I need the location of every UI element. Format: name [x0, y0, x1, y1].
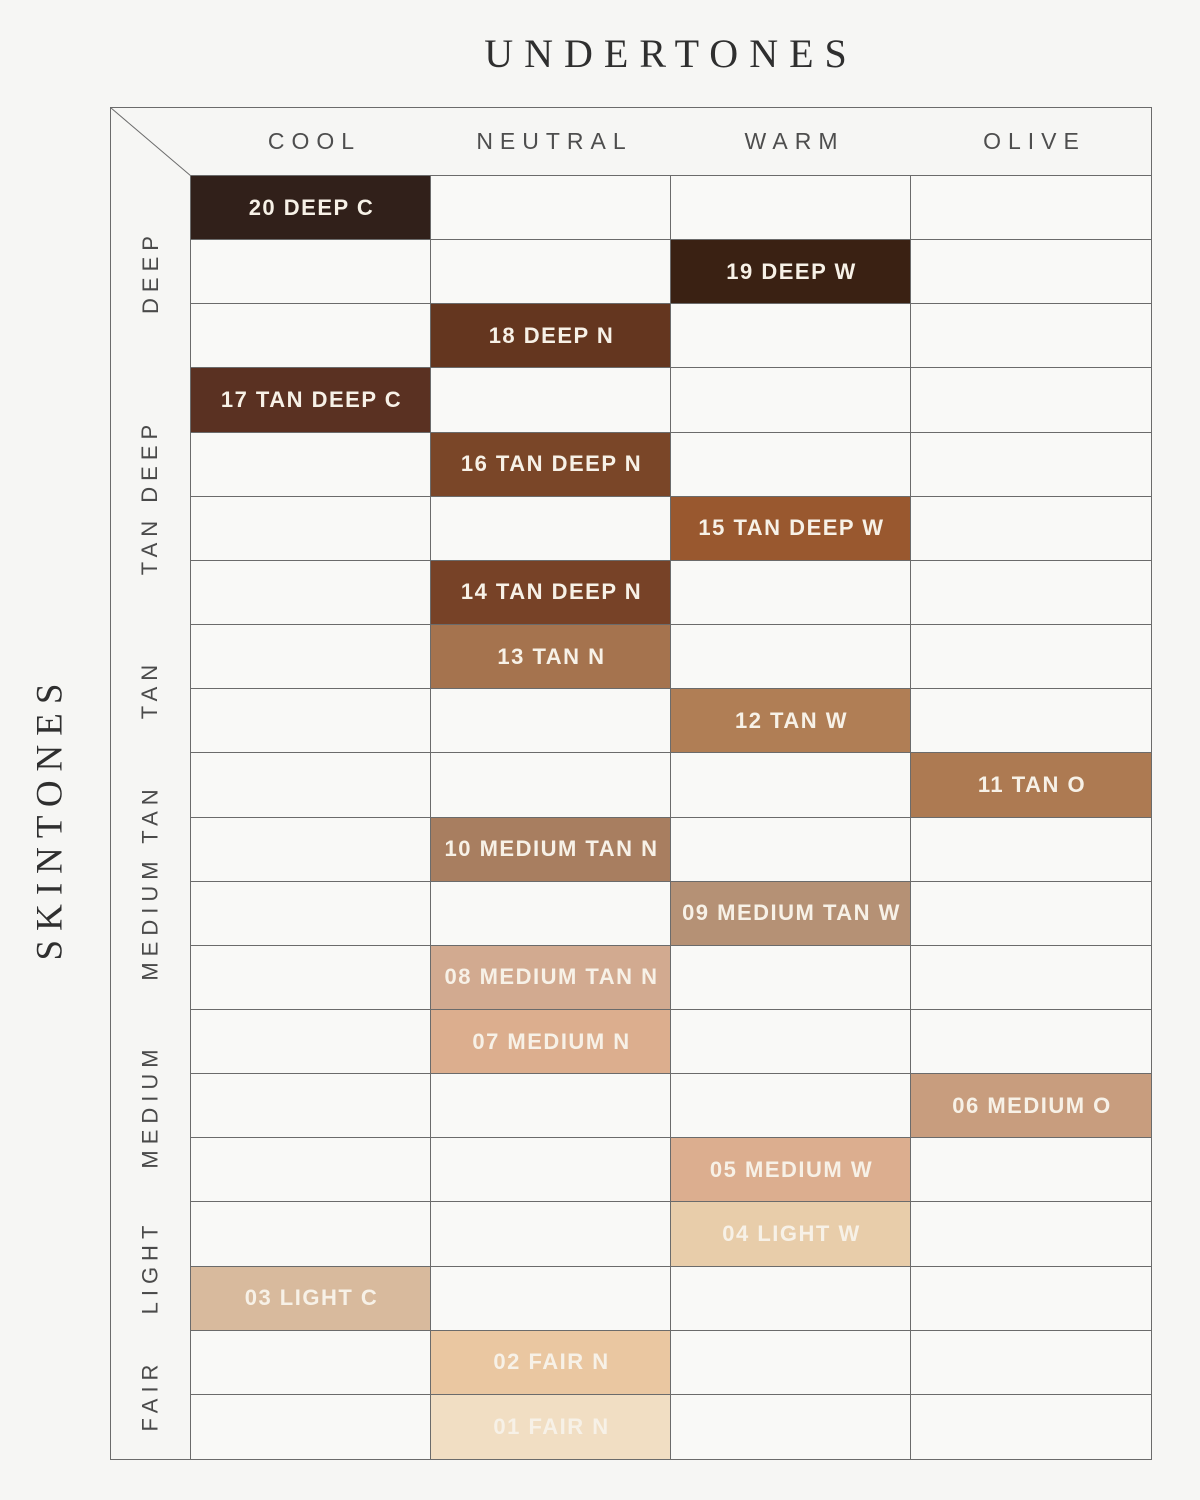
empty-cell — [671, 433, 911, 497]
shade-label: 20 DEEP C — [247, 195, 375, 221]
empty-cell — [431, 176, 671, 240]
empty-cell — [671, 1074, 911, 1138]
shade-swatch: 09 MEDIUM TAN W — [671, 882, 911, 946]
empty-cell — [911, 946, 1151, 1010]
shade-swatch: 13 TAN N — [431, 625, 671, 689]
column-header-warm: WARM — [671, 108, 911, 176]
row-group-label: FAIR — [138, 1358, 164, 1431]
shade-swatch: 15 TAN DEEP W — [671, 497, 911, 561]
empty-cell — [671, 625, 911, 689]
shade-swatch: 14 TAN DEEP N — [431, 561, 671, 625]
shade-swatch: 11 TAN O — [911, 753, 1151, 817]
shade-label: 07 MEDIUM N — [470, 1029, 630, 1055]
shade-swatch: 16 TAN DEEP N — [431, 433, 671, 497]
empty-cell — [191, 1395, 431, 1459]
empty-cell — [671, 304, 911, 368]
empty-cell — [191, 1010, 431, 1074]
corner-cell — [111, 108, 191, 176]
column-header-neutral: NEUTRAL — [431, 108, 671, 176]
skintones-title-wrap: SKINTONES — [4, 175, 96, 1460]
row-group-label: TAN DEEP — [138, 419, 164, 575]
shade-label: 01 FAIR N — [491, 1414, 609, 1440]
empty-cell — [191, 1202, 431, 1266]
shade-label: 13 TAN N — [495, 644, 605, 670]
empty-cell — [191, 882, 431, 946]
empty-cell — [431, 753, 671, 817]
shade-chart-page: UNDERTONES SKINTONES COOL NEUTRAL WARM O… — [0, 0, 1200, 1500]
shade-label: 15 TAN DEEP W — [696, 515, 884, 541]
shade-label: 12 TAN W — [733, 708, 848, 734]
empty-cell — [191, 561, 431, 625]
empty-cell — [671, 1395, 911, 1459]
empty-cell — [431, 689, 671, 753]
empty-cell — [911, 1395, 1151, 1459]
empty-cell — [191, 304, 431, 368]
shade-label: 09 MEDIUM TAN W — [680, 900, 901, 926]
row-group-label: LIGHT — [138, 1219, 164, 1314]
empty-cell — [431, 368, 671, 432]
empty-cell — [911, 882, 1151, 946]
empty-cell — [191, 1074, 431, 1138]
shade-label: 05 MEDIUM W — [708, 1157, 873, 1183]
shade-grid: COOL NEUTRAL WARM OLIVE DEEP TAN DEEP TA… — [110, 107, 1152, 1460]
shade-swatch: 04 LIGHT W — [671, 1202, 911, 1266]
empty-cell — [671, 1010, 911, 1074]
empty-cell — [671, 753, 911, 817]
empty-cell — [911, 368, 1151, 432]
empty-cell — [431, 1138, 671, 1202]
shade-swatch: 12 TAN W — [671, 689, 911, 753]
column-header-olive: OLIVE — [911, 108, 1151, 176]
empty-cell — [431, 1074, 671, 1138]
empty-cell — [671, 561, 911, 625]
empty-cell — [191, 753, 431, 817]
shade-label: 17 TAN DEEP C — [219, 387, 402, 413]
empty-cell — [671, 368, 911, 432]
row-group-label: DEEP — [138, 230, 164, 314]
shade-swatch: 19 DEEP W — [671, 240, 911, 304]
empty-cell — [911, 433, 1151, 497]
skintones-title: SKINTONES — [29, 675, 72, 961]
row-group-medium-tan: MEDIUM TAN — [111, 753, 191, 1010]
shade-swatch: 07 MEDIUM N — [431, 1010, 671, 1074]
shade-label: 16 TAN DEEP N — [459, 451, 642, 477]
shade-label: 18 DEEP N — [487, 323, 615, 349]
empty-cell — [911, 497, 1151, 561]
empty-cell — [191, 946, 431, 1010]
undertones-title: UNDERTONES — [190, 30, 1152, 77]
empty-cell — [911, 304, 1151, 368]
shade-swatch: 17 TAN DEEP C — [191, 368, 431, 432]
row-group-fair: FAIR — [111, 1331, 191, 1459]
empty-cell — [911, 1331, 1151, 1395]
empty-cell — [191, 818, 431, 882]
empty-cell — [671, 818, 911, 882]
shade-swatch: 03 LIGHT C — [191, 1267, 431, 1331]
empty-cell — [191, 625, 431, 689]
empty-cell — [431, 1202, 671, 1266]
row-group-label: MEDIUM — [138, 1044, 164, 1169]
empty-cell — [911, 818, 1151, 882]
empty-cell — [911, 176, 1151, 240]
shade-swatch: 18 DEEP N — [431, 304, 671, 368]
empty-cell — [671, 1267, 911, 1331]
shade-label: 03 LIGHT C — [243, 1285, 379, 1311]
row-group-light: LIGHT — [111, 1202, 191, 1330]
row-group-label: MEDIUM TAN — [138, 783, 164, 980]
empty-cell — [911, 240, 1151, 304]
shade-label: 06 MEDIUM O — [950, 1093, 1112, 1119]
empty-cell — [911, 561, 1151, 625]
shade-swatch: 06 MEDIUM O — [911, 1074, 1151, 1138]
empty-cell — [431, 497, 671, 561]
shade-swatch: 02 FAIR N — [431, 1331, 671, 1395]
shade-label: 10 MEDIUM TAN N — [443, 836, 659, 862]
empty-cell — [911, 625, 1151, 689]
shade-label: 08 MEDIUM TAN N — [443, 964, 659, 990]
diagonal-line-icon — [111, 108, 191, 176]
empty-cell — [191, 497, 431, 561]
shade-label: 11 TAN O — [976, 772, 1086, 798]
row-group-deep: DEEP — [111, 176, 191, 368]
row-group-tan: TAN — [111, 625, 191, 753]
empty-cell — [671, 946, 911, 1010]
empty-cell — [911, 1202, 1151, 1266]
empty-cell — [911, 689, 1151, 753]
shade-swatch: 10 MEDIUM TAN N — [431, 818, 671, 882]
shade-swatch: 08 MEDIUM TAN N — [431, 946, 671, 1010]
shade-swatch: 05 MEDIUM W — [671, 1138, 911, 1202]
shade-swatch: 20 DEEP C — [191, 176, 431, 240]
empty-cell — [431, 882, 671, 946]
shade-label: 19 DEEP W — [724, 259, 856, 285]
empty-cell — [191, 1138, 431, 1202]
empty-cell — [191, 1331, 431, 1395]
row-group-tan-deep: TAN DEEP — [111, 368, 191, 625]
empty-cell — [191, 689, 431, 753]
shade-label: 14 TAN DEEP N — [459, 579, 642, 605]
row-group-medium: MEDIUM — [111, 1010, 191, 1202]
shade-label: 04 LIGHT W — [720, 1221, 860, 1247]
shade-swatch: 01 FAIR N — [431, 1395, 671, 1459]
empty-cell — [191, 240, 431, 304]
shade-label: 02 FAIR N — [491, 1349, 609, 1375]
column-header-cool: COOL — [191, 108, 431, 176]
empty-cell — [671, 176, 911, 240]
empty-cell — [911, 1138, 1151, 1202]
empty-cell — [431, 1267, 671, 1331]
empty-cell — [911, 1010, 1151, 1074]
row-group-label: TAN — [138, 659, 164, 719]
empty-cell — [911, 1267, 1151, 1331]
empty-cell — [671, 1331, 911, 1395]
empty-cell — [431, 240, 671, 304]
empty-cell — [191, 433, 431, 497]
